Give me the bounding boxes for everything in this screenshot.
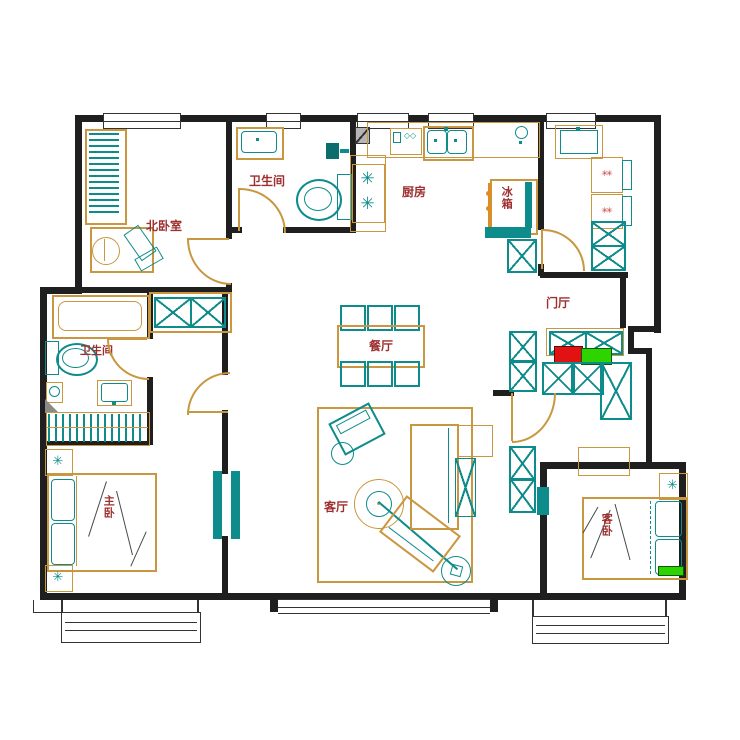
dining-chair-6	[394, 361, 420, 387]
basin-west-inner	[101, 383, 128, 402]
label-entry: 门厅	[546, 296, 570, 310]
bay-conn-4	[665, 600, 667, 616]
sofa-side-table	[457, 425, 493, 457]
pillow-master-1	[51, 479, 75, 521]
sink-basin-right	[447, 130, 467, 154]
cabinet-kitchen	[507, 239, 537, 273]
toilet-north-bowl-inner	[304, 187, 332, 211]
pillow-master-2	[51, 523, 75, 565]
dish-rack-icon: ◇◇	[400, 130, 420, 142]
fridge-side-strip	[525, 182, 532, 228]
bay-window-master	[61, 612, 201, 643]
plinth-line-h	[33, 612, 61, 613]
washer-2-marks: ✳✳	[593, 197, 619, 224]
hall-wardrobe-1	[154, 297, 192, 328]
bed-master-headline	[76, 476, 77, 566]
bay-window-guest	[532, 616, 669, 644]
utility-faucet	[576, 127, 580, 131]
door-master-arc	[187, 372, 230, 415]
side-table-round	[331, 442, 354, 465]
label-living: 客厅	[324, 500, 348, 514]
label-bath-north: 卫生间	[249, 174, 285, 188]
towel-rack-rail	[46, 427, 148, 428]
burner-icon-2: ✳	[355, 192, 380, 216]
gas-valve-dot	[519, 141, 522, 144]
wall-nbed-right-a	[226, 122, 232, 239]
sofa-back-line	[448, 428, 449, 523]
kitchen-shelf	[485, 227, 531, 238]
desk-chair-line	[104, 239, 105, 261]
basin-west-tap	[112, 401, 116, 405]
window-living-south	[278, 599, 490, 614]
fridge-knob-2	[486, 206, 491, 211]
bathtub-inner	[58, 301, 142, 331]
towel-rack-bars	[48, 414, 146, 442]
dining-chair-5	[367, 361, 393, 387]
sink-faucet	[444, 127, 448, 131]
utility-basin	[560, 130, 598, 154]
window-post-left	[270, 595, 278, 612]
bay-conn-3	[532, 600, 534, 616]
cabinet-entry-col-1	[509, 331, 537, 363]
cabinet-utility-1	[591, 221, 626, 247]
wall-right-mid	[646, 348, 652, 468]
cabinet-utility-2	[591, 245, 626, 271]
utility-strip-1	[622, 160, 632, 190]
label-master-bedroom: 主卧	[102, 495, 115, 519]
tap-fitting	[340, 149, 349, 153]
wardrobe-shelves	[89, 133, 119, 217]
door-north-bedroom-arc	[187, 239, 231, 285]
wall-mbr-right-b	[222, 410, 228, 474]
bay-conn-1	[61, 600, 63, 612]
door-entry-arc	[512, 393, 556, 443]
wall-mbr-right-c	[222, 536, 228, 593]
door-bath-north-arc	[240, 188, 286, 233]
slider-master-2	[231, 471, 240, 539]
dining-chair-4	[340, 361, 366, 387]
plant-icon-2: ✳	[46, 566, 70, 589]
label-dining: 餐厅	[369, 339, 393, 353]
label-kitchen: 厨房	[402, 185, 426, 199]
wall-gbr-left-b	[540, 514, 547, 600]
washer-1-marks: ✳✳	[593, 160, 619, 188]
bed-guest-dashline	[650, 501, 651, 574]
wall-right-upper	[654, 115, 661, 333]
wall-left-upper	[75, 115, 82, 294]
slider-master-1	[213, 471, 222, 539]
sink-drain-left	[434, 139, 437, 142]
vanity-faucet	[256, 138, 259, 141]
door-guest-slider	[537, 487, 549, 515]
gas-valve-icon	[515, 126, 528, 139]
window-north-bedroom	[103, 113, 181, 129]
cabinet-entry-corner	[600, 362, 632, 420]
vanity-sink	[241, 131, 277, 153]
hall-wardrobe-2	[190, 297, 226, 328]
fridge-knob-1	[486, 191, 491, 196]
door-bath-west-arc	[107, 339, 149, 380]
cabinet-entry-col-2	[509, 360, 537, 392]
floor-plan: 北卧室 卫生间 ◇◇ ✳ ✳ 冰箱 厨房 ✳✳ ✳✳ 门厅	[0, 0, 740, 740]
burner-icon-1: ✳	[355, 167, 380, 191]
sink-basin-left	[427, 130, 447, 154]
wall-bath1-bottom-b	[283, 227, 356, 233]
desk-chair	[92, 237, 120, 265]
magazine-rack	[455, 458, 476, 517]
bed-guest-runner	[658, 566, 684, 576]
label-fridge: 冰箱	[500, 186, 513, 210]
corner-shower-tray	[45, 399, 59, 413]
label-north-bedroom: 北卧室	[146, 219, 182, 233]
door-utility-arc	[543, 229, 585, 271]
wall-utility-bottom	[540, 272, 628, 278]
bay-conn-2	[197, 600, 199, 612]
wall-entry-right	[620, 272, 626, 328]
cabinet-entry-low-2	[509, 478, 536, 513]
label-guest-bedroom: 客卧	[600, 513, 613, 537]
window-post-right	[490, 595, 498, 612]
washer-box-dial	[49, 386, 60, 397]
plant-icon-1: ✳	[46, 450, 70, 473]
pillow-guest-1	[655, 501, 682, 537]
plant-icon-3: ✳	[660, 474, 685, 497]
floor-drain-box	[326, 143, 339, 159]
cabinet-entry-low-1	[509, 446, 536, 481]
hall-console	[578, 447, 630, 476]
sink-drain-right	[454, 139, 457, 142]
